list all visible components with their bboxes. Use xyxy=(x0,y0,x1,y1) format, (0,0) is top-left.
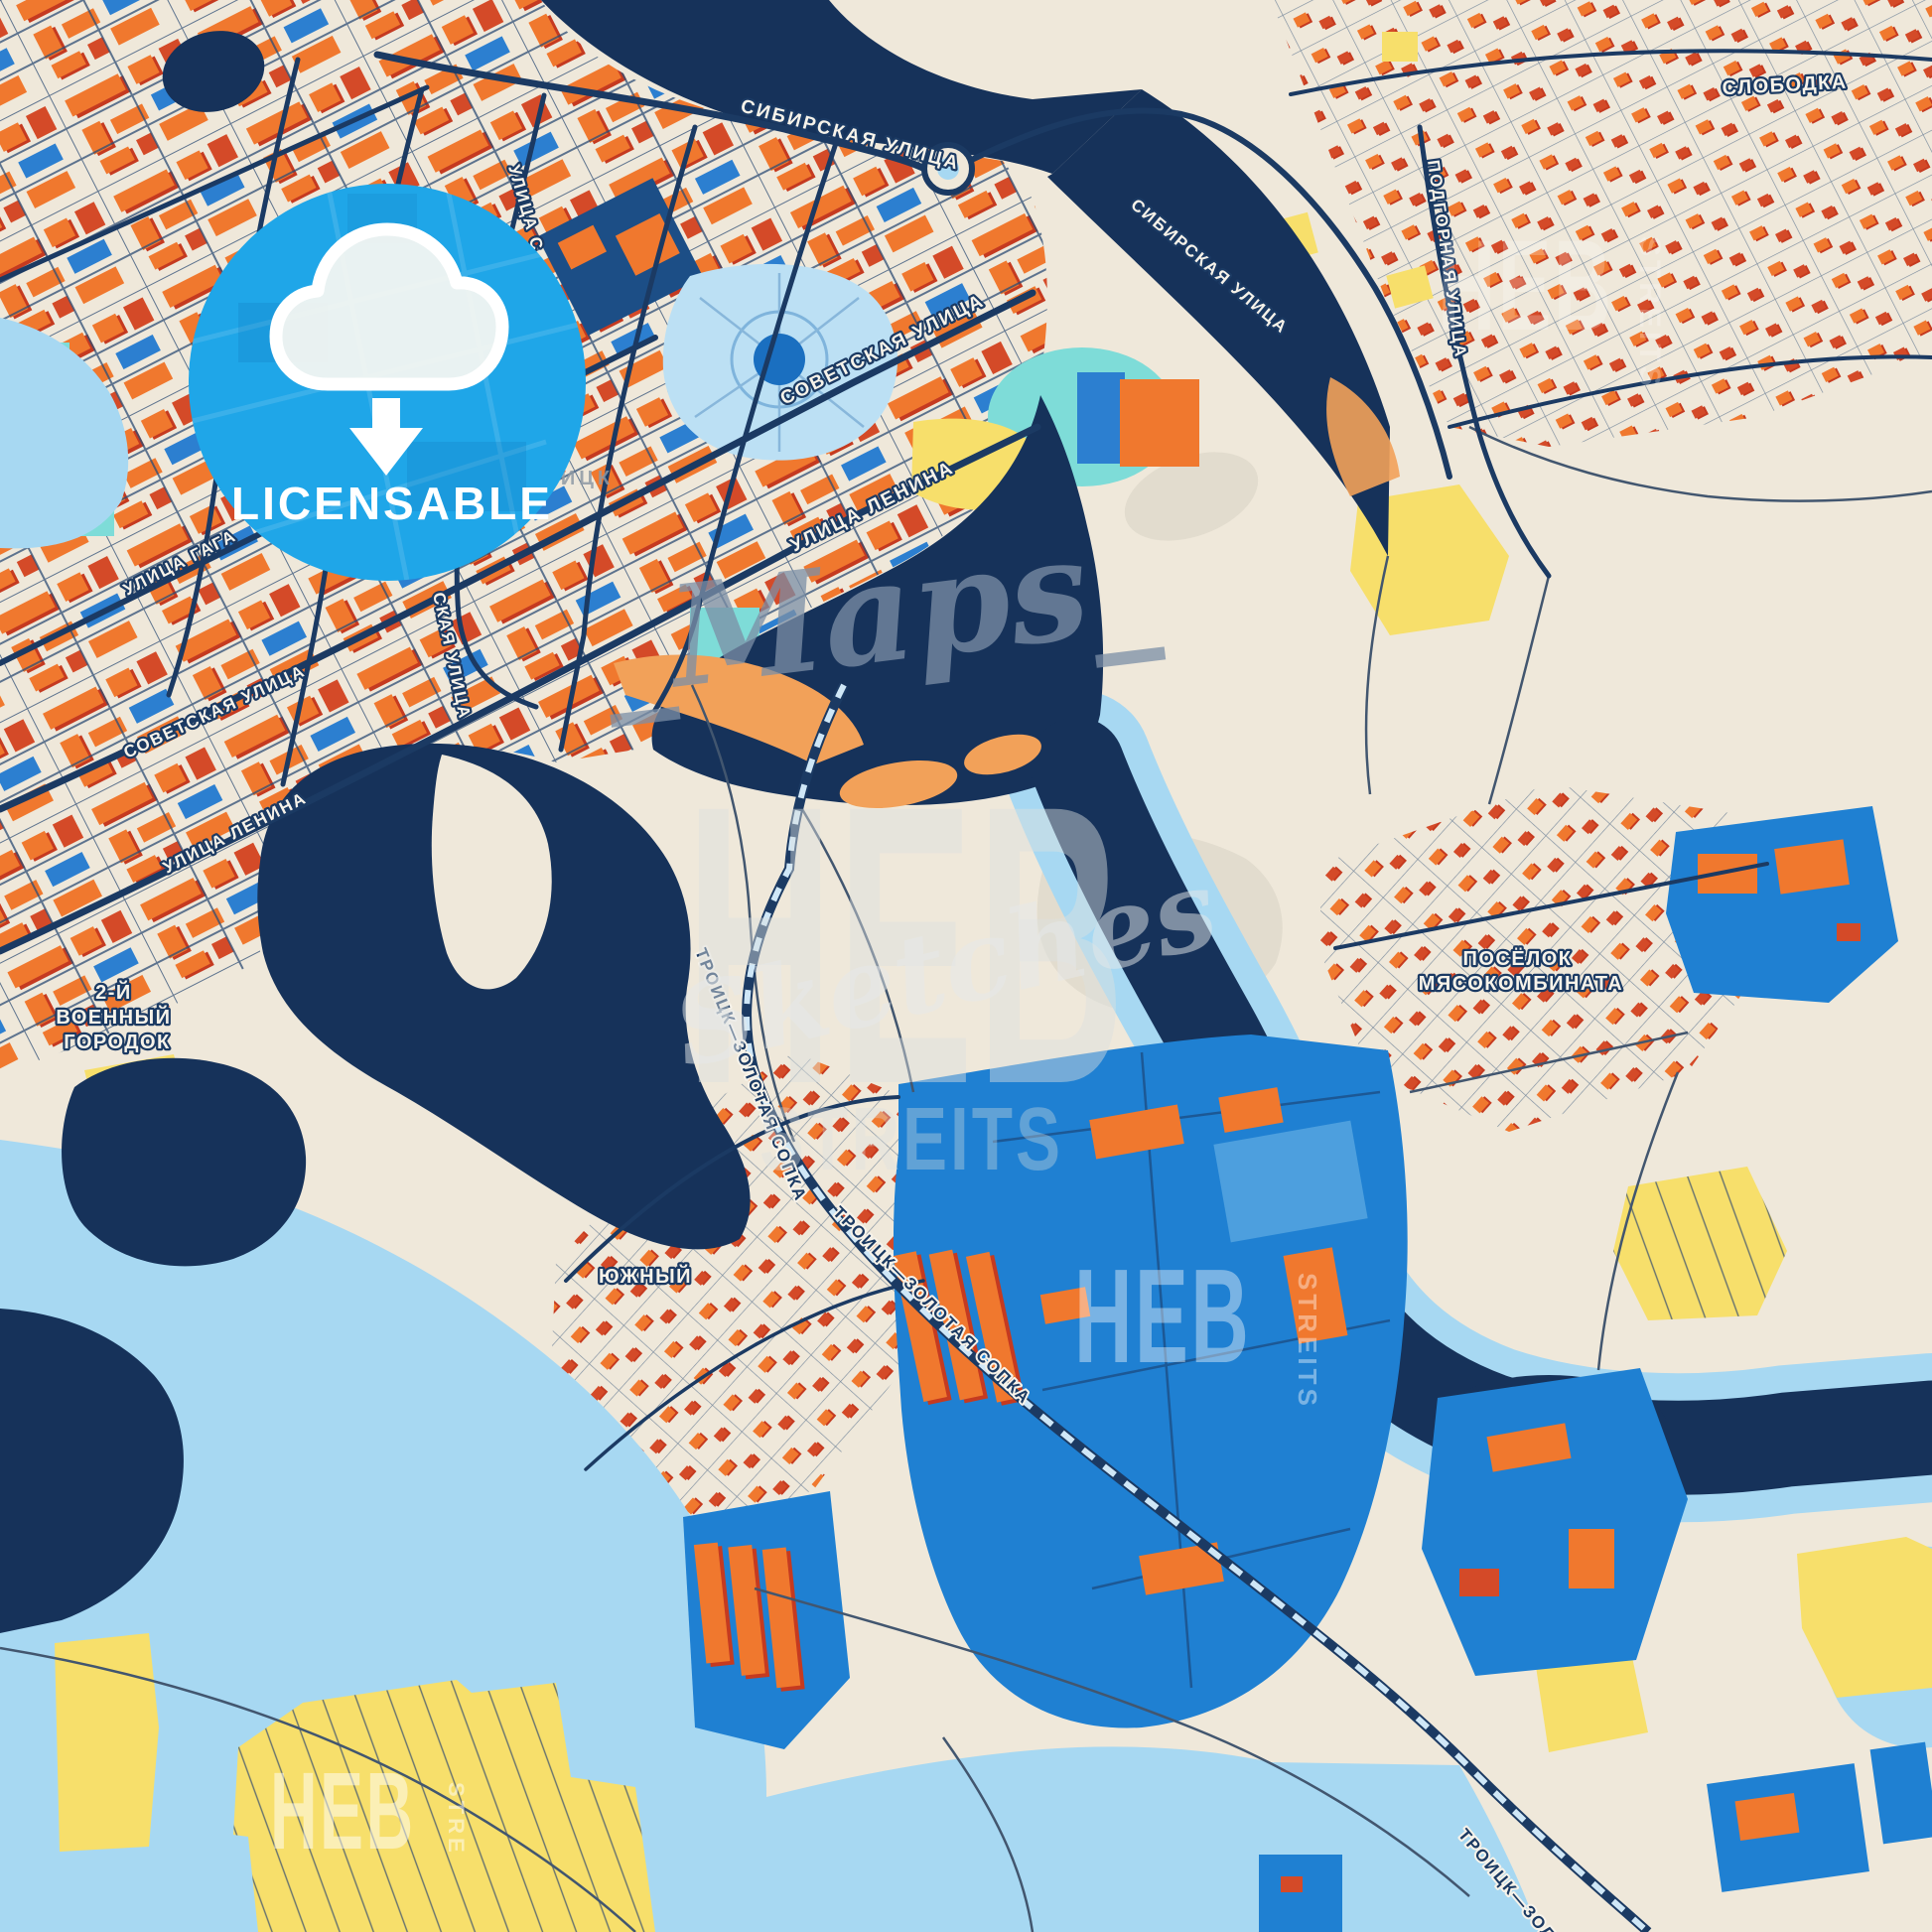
brand-suffix-topright: STREITS xyxy=(1633,236,1666,390)
brand-suffix-bottomright: STREITS xyxy=(1293,1273,1322,1410)
lake-b xyxy=(62,1058,306,1267)
brand-small-bottomleft: STRE xyxy=(444,1782,469,1857)
brand-watermark-bottomleft: HEB xyxy=(270,1751,416,1872)
brand-suffix-center: STREITS xyxy=(759,1089,1063,1189)
place-label-yuzhny: ЮЖНЫЙ xyxy=(599,1264,692,1288)
badge-label: LICENSABLE xyxy=(231,478,553,529)
brand-watermark-topright: HEB xyxy=(1438,212,1614,356)
map-poster: СИБИРСКАЯ УЛИЦА СИБИРСКАЯ УЛИЦА СОВЕТСКА… xyxy=(0,0,1932,1932)
landmark-block xyxy=(1120,379,1199,467)
licensable-badge[interactable]: LICENSABLE xyxy=(189,184,586,581)
brand-watermark-bottomright: HEB xyxy=(1074,1241,1251,1392)
map-canvas: СИБИРСКАЯ УЛИЦА СИБИРСКАЯ УЛИЦА СОВЕТСКА… xyxy=(0,0,1932,1932)
landmark-block xyxy=(1077,372,1125,464)
